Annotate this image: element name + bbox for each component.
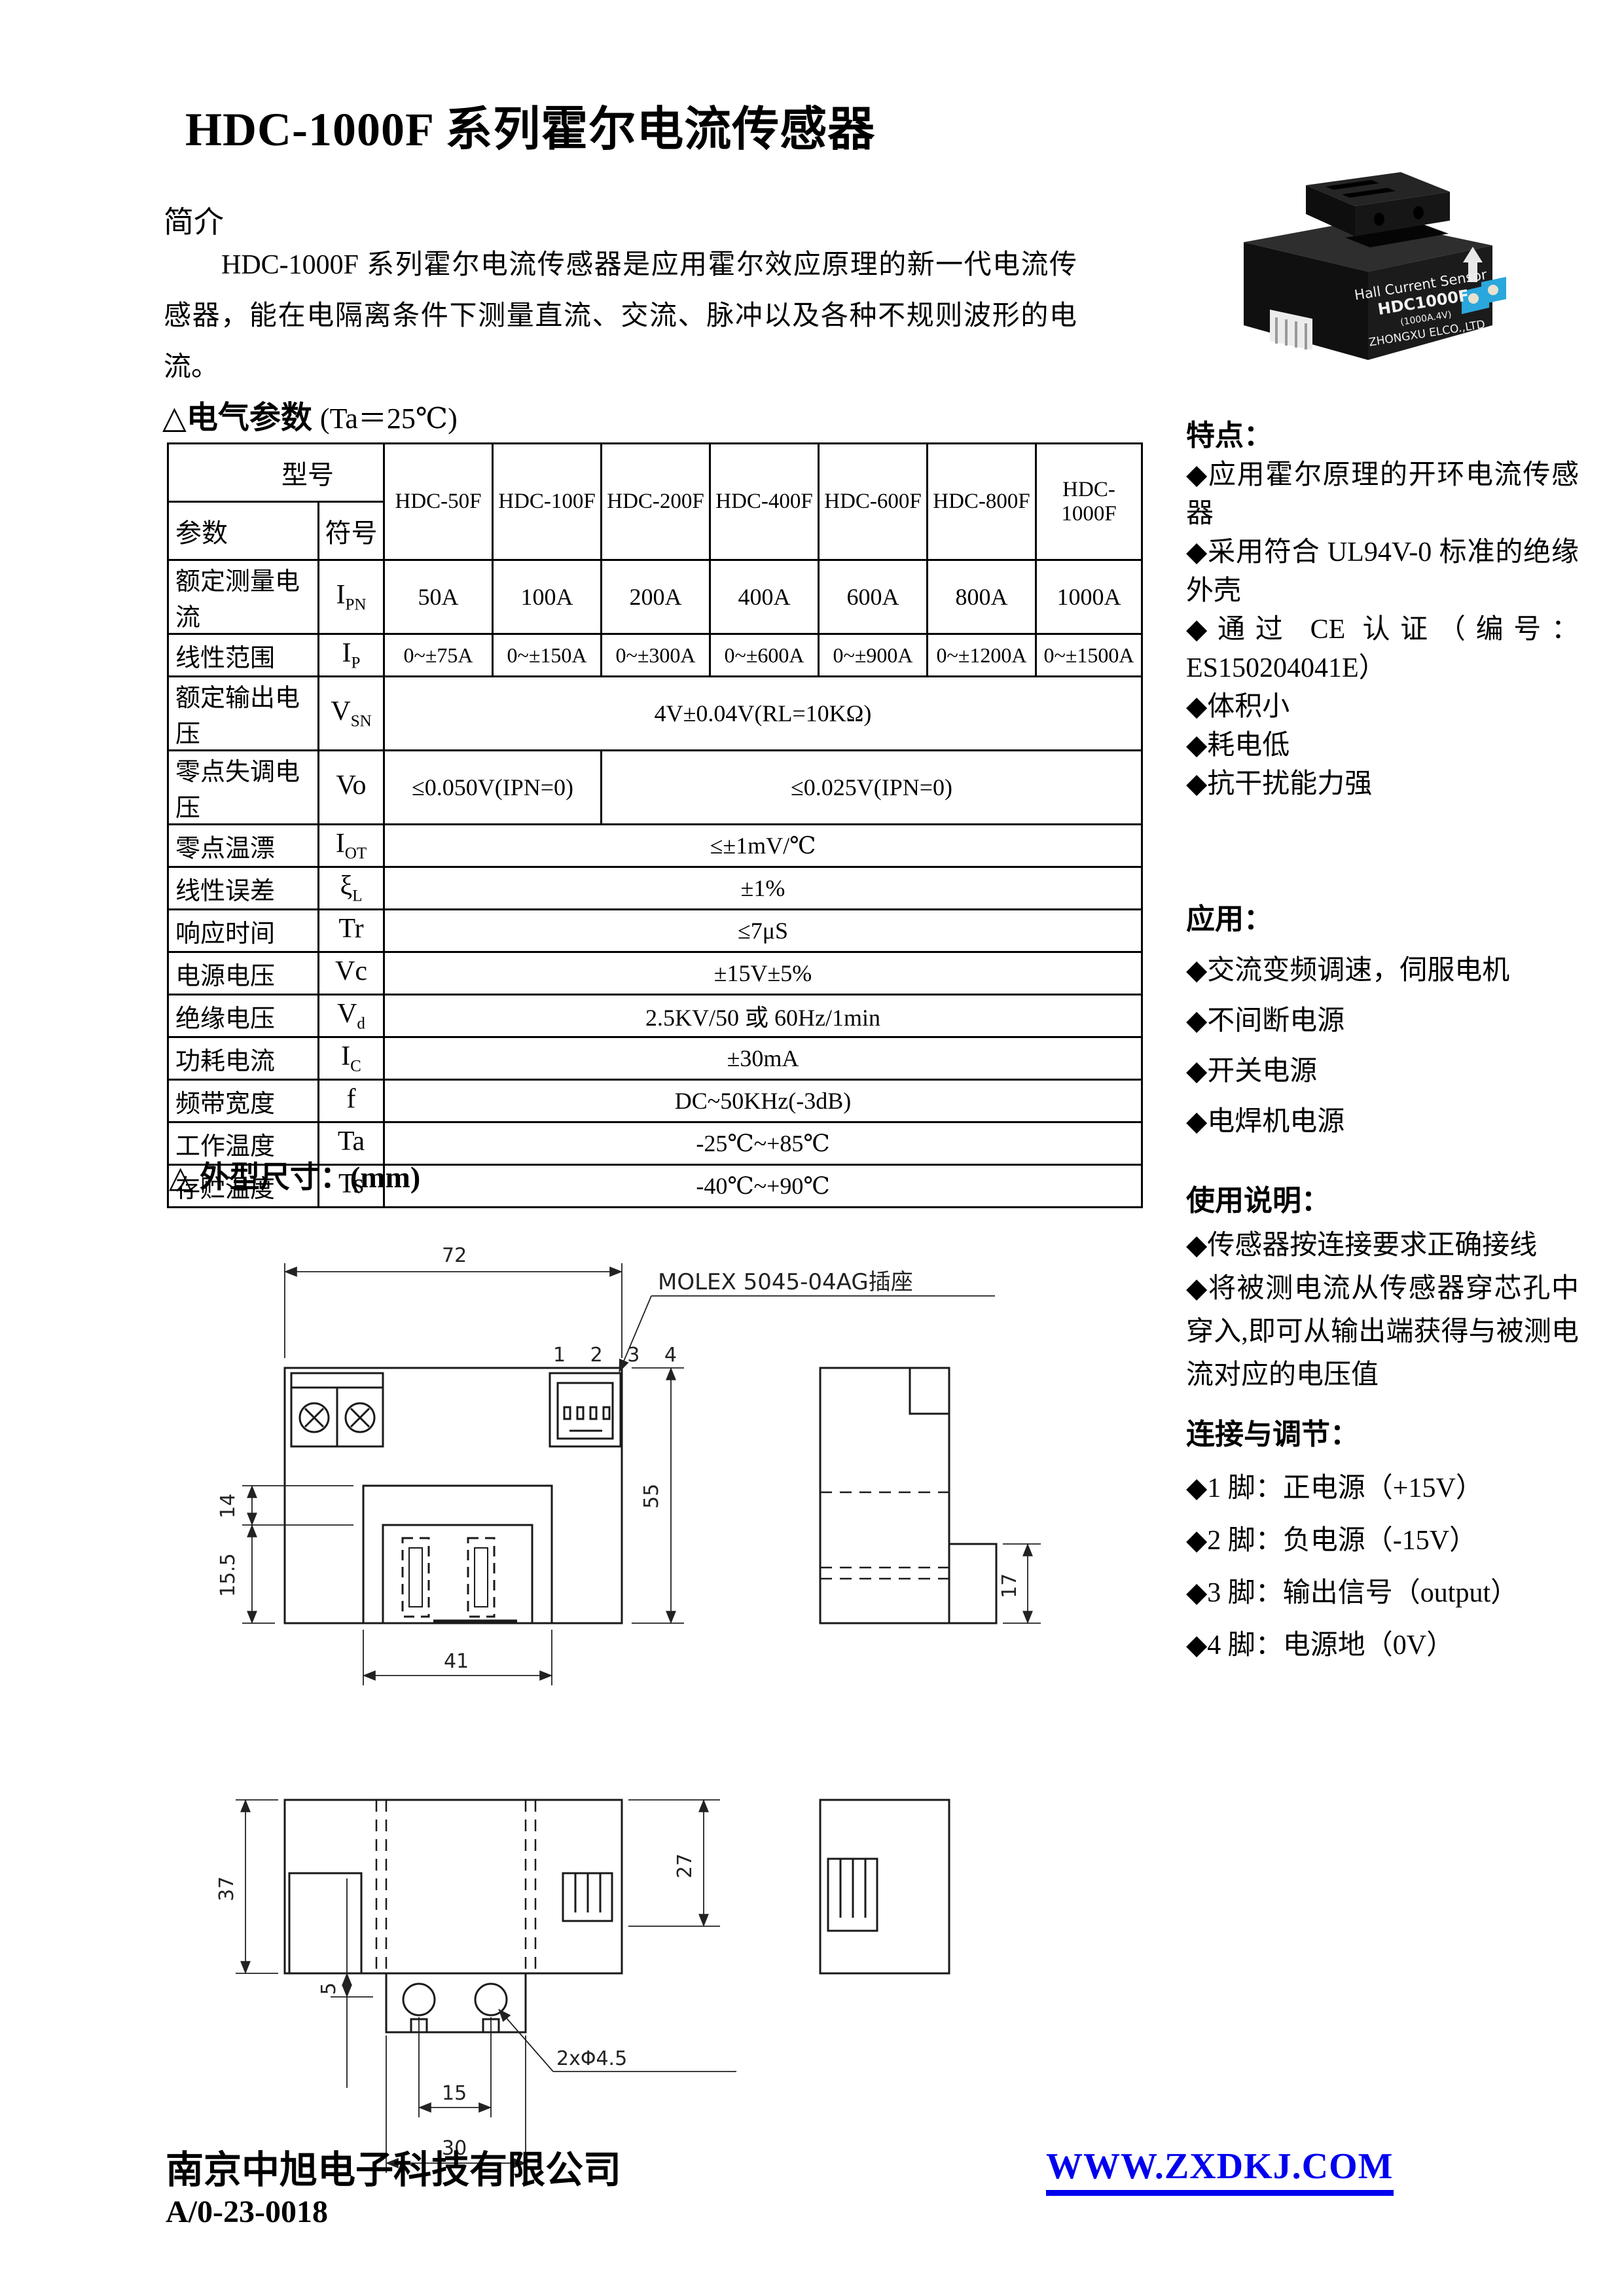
row-symbol: IC <box>319 1037 384 1080</box>
applications-title: 应用： <box>1186 893 1579 946</box>
row-label: 功耗电流 <box>168 1037 319 1080</box>
dim-5-label: 5 <box>317 1982 340 1995</box>
row-label: 绝缘电压 <box>168 995 319 1037</box>
cell-value: 200A <box>602 560 710 634</box>
feature-item: ◆通过 CE 认证（编号：ES150204041E） <box>1186 611 1579 688</box>
cell-value: 400A <box>710 560 819 634</box>
connector-callout-label: MOLEX 5045-04AG插座 <box>658 1269 913 1295</box>
row-label: 线性范围 <box>168 634 319 677</box>
row-label: 频带宽度 <box>168 1080 319 1122</box>
corner-symbol-label: 符号 <box>319 502 384 560</box>
model-col-5: HDC-800F <box>928 444 1036 560</box>
cell-value: 4V±0.04V(RL=10KΩ) <box>384 677 1142 751</box>
row-label: 额定测量电流 <box>168 560 319 634</box>
cell-value: 0~±1200A <box>928 634 1036 677</box>
model-col-4: HDC-600F <box>819 444 928 560</box>
cell-value: 0~±150A <box>493 634 602 677</box>
row-symbol: ξL <box>319 867 384 910</box>
dim-27-label: 27 <box>674 1854 696 1878</box>
cell-value: ≤0.050V(IPN=0) <box>384 751 602 825</box>
product-photo: Hall Current Sensor HDC1000F (1000A.4V) … <box>1208 154 1515 376</box>
company-name: 南京中旭电子科技有限公司 <box>166 2139 621 2194</box>
cell-value: 2.5KV/50 或 60Hz/1min <box>384 995 1142 1037</box>
model-col-6: HDC-1000F <box>1036 444 1142 560</box>
connection-title: 连接与调节： <box>1186 1407 1579 1462</box>
website-link[interactable]: WWW.ZXDKJ.COM <box>1046 2145 1394 2196</box>
table-header-row-1: 型号 HDC-50F HDC-100F HDC-200F HDC-400F HD… <box>168 444 1142 502</box>
row-symbol: IP <box>319 634 384 677</box>
feature-item: ◆体积小 <box>1186 688 1579 726</box>
dimensions-section-heading: △ 外型尺寸：(mm) <box>169 1153 420 1196</box>
table-row-ip: 线性范围 IP 0~±75A 0~±150A 0~±300A 0~±600A 0… <box>168 634 1142 677</box>
table-row-ipn: 额定测量电流 IPN 50A 100A 200A 400A 600A 800A … <box>168 560 1142 634</box>
electrical-section-heading: △电气参数 (Ta＝25℃) <box>162 391 458 437</box>
dim-41-label: 41 <box>444 1650 469 1673</box>
row-label: 额定输出电压 <box>168 677 319 751</box>
table-row-ic: 功耗电流 IC ±30mA <box>168 1037 1142 1080</box>
connection-item: ◆4 脚：电源地（0V） <box>1186 1619 1579 1672</box>
model-col-0: HDC-50F <box>384 444 493 560</box>
electrical-heading-text: △电气参数 <box>162 401 312 435</box>
cell-value: 0~±75A <box>384 634 493 677</box>
electrical-condition: (Ta＝25℃) <box>320 403 458 435</box>
row-symbol: Vc <box>319 952 384 995</box>
features-title: 特点： <box>1186 416 1579 456</box>
dim-17-label: 17 <box>998 1573 1021 1598</box>
row-symbol: Vo <box>319 751 384 825</box>
front-view-outline <box>285 1368 622 1623</box>
core-window <box>363 1486 552 1623</box>
connection-item: ◆3 脚：输出信号（output） <box>1186 1567 1579 1619</box>
feature-item: ◆耗电低 <box>1186 726 1579 765</box>
cell-value: ≤±1mV/℃ <box>384 825 1142 867</box>
cell-value: DC~50KHz(-3dB) <box>384 1080 1142 1122</box>
cell-value: 0~±300A <box>602 634 710 677</box>
row-label: 零点失调电压 <box>168 751 319 825</box>
cell-value: ≤7μS <box>384 910 1142 952</box>
cell-value: ±15V±5% <box>384 952 1142 995</box>
dimensions-unit: (mm) <box>350 1160 420 1194</box>
core-hole-1 <box>1374 213 1384 226</box>
row-symbol: f <box>319 1080 384 1122</box>
table-row-vc: 电源电压 Vc ±15V±5% <box>168 952 1142 995</box>
usage-item: ◆传感器按连接要求正确接线 <box>1186 1224 1579 1267</box>
row-label: 电源电压 <box>168 952 319 995</box>
row-symbol: IOT <box>319 825 384 867</box>
dim-72-label: 72 <box>442 1244 467 1267</box>
intro-heading: 简介 <box>164 198 224 242</box>
table-row-tr: 响应时间 Tr ≤7μS <box>168 910 1142 952</box>
table-row-vo: 零点失调电压 Vo ≤0.050V(IPN=0) ≤0.025V(IPN=0) <box>168 751 1142 825</box>
row-symbol: Tr <box>319 910 384 952</box>
connection-item: ◆2 脚：负电源（-15V） <box>1186 1515 1579 1567</box>
usage-title: 使用说明： <box>1186 1178 1579 1224</box>
cell-value: 100A <box>493 560 602 634</box>
hole-callout-label: 2xΦ4.5 <box>556 2047 627 2070</box>
cell-value: 0~±900A <box>819 634 928 677</box>
usage-item: ◆将被测电流从传感器穿芯孔中穿入,即可从输出端获得与被测电流对应的电压值 <box>1186 1267 1579 1397</box>
application-item: ◆开关电源 <box>1186 1047 1579 1097</box>
cell-value: 800A <box>928 560 1036 634</box>
sidebar-connection: 连接与调节： ◆1 脚：正电源（+15V） ◆2 脚：负电源（-15V） ◆3 … <box>1186 1407 1579 1672</box>
application-item: ◆交流变频调速，伺服电机 <box>1186 946 1579 996</box>
cell-value: 50A <box>384 560 493 634</box>
row-label: 线性误差 <box>168 867 319 910</box>
dim-37-label: 37 <box>215 1876 238 1901</box>
side-view-outline <box>820 1368 949 1623</box>
row-symbol: VSN <box>319 677 384 751</box>
datasheet-page: HDC-1000F 系列霍尔电流传感器 简介 HDC-1000F 系列霍尔电流传… <box>0 0 1624 2296</box>
cell-value: 0~±1500A <box>1036 634 1142 677</box>
model-col-2: HDC-200F <box>602 444 710 560</box>
corner-model-label: 型号 <box>168 444 384 502</box>
row-label: 零点温漂 <box>168 825 319 867</box>
dimensions-heading-text: △ 外型尺寸： <box>169 1160 350 1194</box>
table-row-vsn: 额定输出电压 VSN 4V±0.04V(RL=10KΩ) <box>168 677 1142 751</box>
bottom-view-outline <box>285 1800 622 1973</box>
row-symbol: IPN <box>319 560 384 634</box>
sidebar-usage: 使用说明： ◆传感器按连接要求正确接线 ◆将被测电流从传感器穿芯孔中穿入,即可从… <box>1186 1178 1579 1397</box>
table-row-iot: 零点温漂 IOT ≤±1mV/℃ <box>168 825 1142 867</box>
table-row-xl: 线性误差 ξL ±1% <box>168 867 1142 910</box>
feature-item: ◆抗干扰能力强 <box>1186 765 1579 804</box>
mounting-hole-2 <box>475 1984 507 2015</box>
dim-15_5-label: 15.5 <box>217 1553 240 1597</box>
document-number: A/0-23-0018 <box>166 2194 328 2230</box>
cell-value: ≤0.025V(IPN=0) <box>602 751 1142 825</box>
feature-item: ◆采用符合 UL94V-0 标准的绝缘外壳 <box>1186 533 1579 611</box>
intro-paragraph: HDC-1000F 系列霍尔电流传感器是应用霍尔效应原理的新一代电流传感器，能在… <box>164 240 1077 393</box>
dim-14-label: 14 <box>217 1494 240 1518</box>
model-col-3: HDC-400F <box>710 444 819 560</box>
dim-55-label: 55 <box>640 1484 663 1509</box>
mounting-tab <box>386 1973 526 2032</box>
cell-value: 600A <box>819 560 928 634</box>
connection-item: ◆1 脚：正电源（+15V） <box>1186 1462 1579 1515</box>
feature-item: ◆应用霍尔原理的开环电流传感器 <box>1186 456 1579 533</box>
table-row-vd: 绝缘电压 Vd 2.5KV/50 或 60Hz/1min <box>168 995 1142 1037</box>
dim-15-label: 15 <box>442 2082 467 2105</box>
pin-numbers-label: 1 2 3 4 <box>553 1344 686 1367</box>
mounting-foot-side <box>949 1544 996 1623</box>
cell-value: ±1% <box>384 867 1142 910</box>
electrical-parameters-table: 型号 HDC-50F HDC-100F HDC-200F HDC-400F HD… <box>167 442 1143 1208</box>
page-title: HDC-1000F 系列霍尔电流传感器 <box>185 90 875 159</box>
row-symbol: Vd <box>319 995 384 1037</box>
sidebar-features: 特点： ◆应用霍尔原理的开环电流传感器 ◆采用符合 UL94V-0 标准的绝缘外… <box>1186 416 1579 804</box>
sidebar-applications: 应用： ◆交流变频调速，伺服电机 ◆不间断电源 ◆开关电源 ◆电焊机电源 <box>1186 893 1579 1147</box>
outline-drawing: 72 55 14 15.5 41 17 37 5 15 30 27 2xΦ4.5… <box>151 1198 1198 2179</box>
row-label: 响应时间 <box>168 910 319 952</box>
cell-value: 1000A <box>1036 560 1142 634</box>
table-row-f: 频带宽度 f DC~50KHz(-3dB) <box>168 1080 1142 1122</box>
cell-value: 0~±600A <box>710 634 819 677</box>
cell-value: ±30mA <box>384 1037 1142 1080</box>
cell-value: -25℃~+85℃ <box>384 1122 1142 1165</box>
application-item: ◆电焊机电源 <box>1186 1097 1579 1147</box>
core-hole-2 <box>1413 206 1424 219</box>
mounting-hole-1 <box>403 1984 435 2015</box>
corner-param-label: 参数 <box>168 502 319 560</box>
model-col-1: HDC-100F <box>493 444 602 560</box>
application-item: ◆不间断电源 <box>1186 996 1579 1047</box>
